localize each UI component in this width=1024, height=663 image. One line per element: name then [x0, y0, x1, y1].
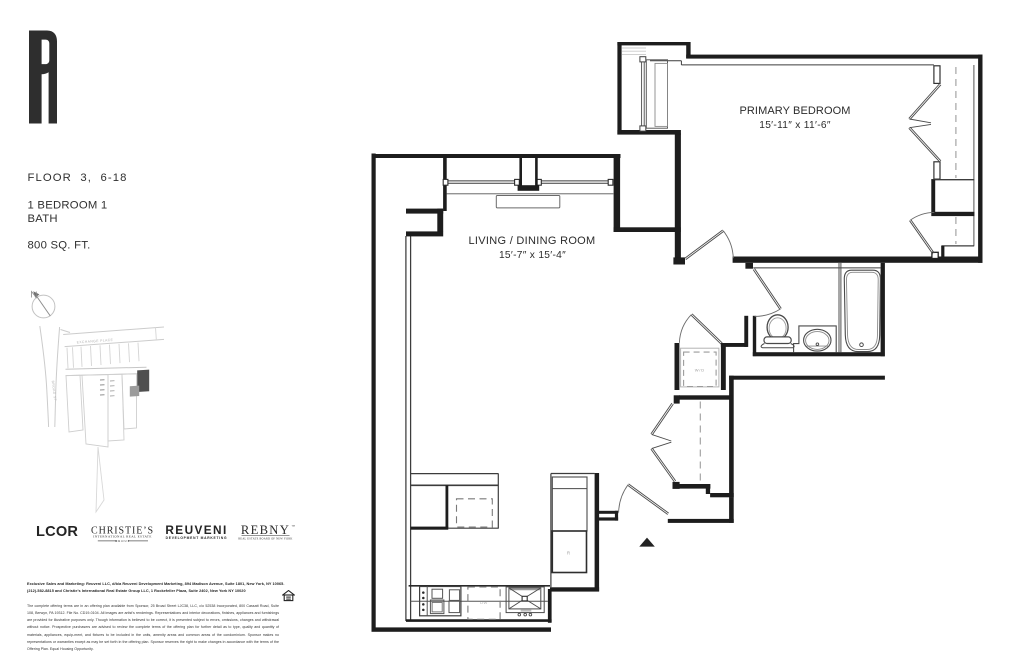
svg-text:LIVING / DINING ROOM: LIVING / DINING ROOM [468, 235, 595, 247]
svg-text:GROUP: GROUP [115, 539, 130, 543]
svg-text:W/D: W/D [695, 368, 705, 373]
svg-text:BATH: BATH [28, 213, 58, 225]
svg-text:LCOR: LCOR [36, 524, 78, 540]
svg-text:15′-7″ x 15′-4″: 15′-7″ x 15′-4″ [499, 250, 566, 261]
svg-text:REAL ESTATE BOARD OF NEW YORK: REAL ESTATE BOARD OF NEW YORK [238, 537, 292, 540]
svg-text:INTERNATIONAL REAL ESTATE: INTERNATIONAL REAL ESTATE [93, 535, 152, 539]
svg-text:1 BEDROOM 1: 1 BEDROOM 1 [28, 200, 108, 212]
svg-text:PRIMARY BEDROOM: PRIMARY BEDROOM [739, 105, 850, 117]
svg-text:REBNY: REBNY [241, 523, 290, 537]
svg-text:800 SQ. FT.: 800 SQ. FT. [28, 240, 91, 252]
svg-text:DW: DW [480, 600, 488, 605]
svg-text:FLOOR 3, 6-18: FLOOR 3, 6-18 [28, 172, 128, 184]
svg-text:15′-11″ x 11′-6″: 15′-11″ x 11′-6″ [759, 120, 831, 131]
svg-text:R: R [567, 551, 570, 556]
svg-text:DEVELOPMENT MARKETING: DEVELOPMENT MARKETING [166, 536, 228, 540]
svg-text:™: ™ [292, 525, 296, 529]
